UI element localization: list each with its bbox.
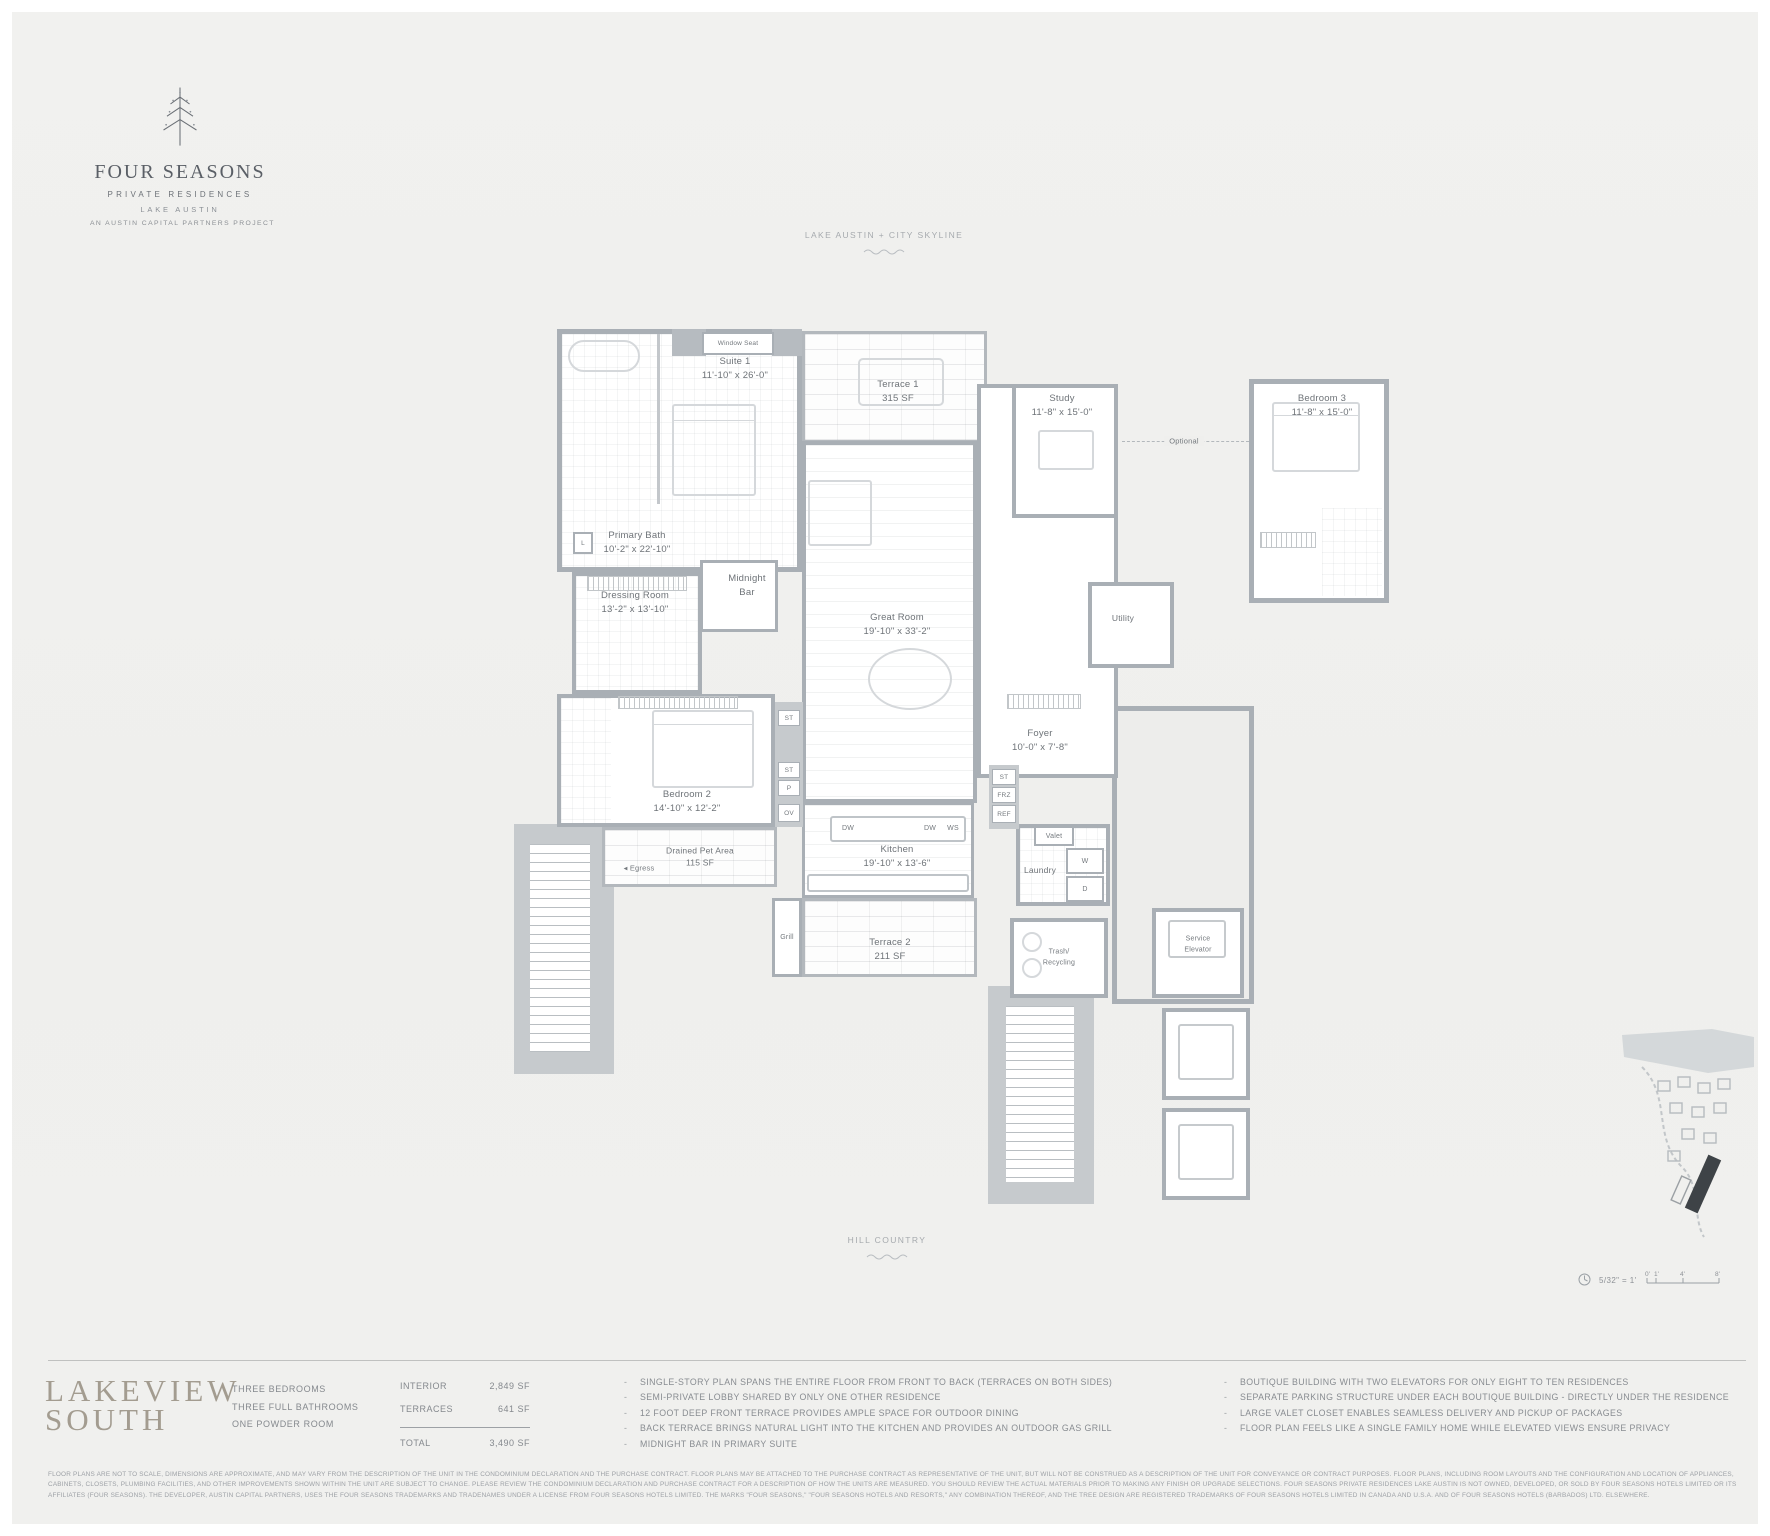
unit-specs: THREE BEDROOMS THREE FULL BATHROOMS ONE … <box>232 1381 359 1434</box>
features-right: -BOUTIQUE BUILDING WITH TWO ELEVATORS FO… <box>1224 1375 1729 1437</box>
freezer-tag: FRZ <box>992 787 1016 803</box>
bed-icon <box>672 404 756 496</box>
brand-block: Four Seasons PRIVATE RESIDENCES LAKE AUS… <box>80 84 280 214</box>
bedroom2-bath <box>561 698 611 823</box>
room-label-terrace1: Terrace 1315 SF <box>877 378 918 406</box>
svg-text:8': 8' <box>1715 1271 1720 1278</box>
closet-hatch <box>1007 694 1081 709</box>
unit-title: LAKEVIEW SOUTH <box>45 1376 241 1435</box>
fridge-tag: REF <box>992 805 1016 823</box>
brand-name: Four Seasons <box>80 161 280 184</box>
dishwasher-tag: DW <box>924 824 936 835</box>
orientation-bottom-label: HILL COUNTRY <box>848 1235 927 1245</box>
elevator-shaft-1 <box>1162 1008 1250 1100</box>
scale-ratio: 5/32" = 1' <box>1599 1276 1637 1286</box>
stairs-west <box>530 844 590 1052</box>
spec-powder: ONE POWDER ROOM <box>232 1416 359 1434</box>
bed-icon <box>652 710 754 788</box>
project-credit: AN AUSTIN CAPITAL PARTNERS PROJECT <box>90 220 275 227</box>
room-label-service-elevator: ServiceElevator <box>1184 935 1211 956</box>
bedroom3-bath <box>1322 508 1382 596</box>
room-label-great-room: Great Room19'-10" x 33'-2" <box>864 611 931 639</box>
spec-bedrooms: THREE BEDROOMS <box>232 1381 359 1399</box>
wall <box>657 334 660 504</box>
compass-icon <box>1578 1273 1591 1286</box>
room-label-primary-bath: Primary Bath10'-2" x 22'-10" <box>604 529 671 557</box>
brand-location: LAKE AUSTIN <box>80 205 280 214</box>
room-label-study: Study11'-8" x 15'-0" <box>1032 392 1093 420</box>
room-label-kitchen: Kitchen19'-10" x 13'-6" <box>864 843 931 871</box>
site-map <box>1612 1027 1760 1247</box>
divider <box>48 1360 1746 1361</box>
window-seat: Window Seat <box>702 332 774 355</box>
svg-text:4': 4' <box>1680 1271 1685 1278</box>
four-seasons-tree-icon <box>154 84 206 150</box>
orientation-top-label: LAKE AUSTIN + CITY SKYLINE <box>805 230 963 240</box>
room-label-trash: Trash/Recycling <box>1043 948 1075 969</box>
svg-text:0': 0' <box>1645 1271 1650 1278</box>
storage-tag: ST <box>778 762 800 778</box>
brand-subtitle: PRIVATE RESIDENCES <box>80 190 280 199</box>
washer-tag: W <box>1066 848 1104 874</box>
room-label-utility: Utility <box>1112 612 1134 624</box>
closet-hatch <box>618 696 738 709</box>
room-label-midnight-bar: MidnightBar <box>728 572 766 600</box>
wave-ornament <box>865 1253 909 1261</box>
floor-plan-sheet: Four Seasons PRIVATE RESIDENCES LAKE AUS… <box>0 0 1770 1536</box>
total-rule <box>400 1427 530 1428</box>
area-table: INTERIOR2,849 SF TERRACES641 SF TOTAL3,4… <box>400 1381 530 1461</box>
storage-tag: ST <box>992 769 1016 785</box>
room-label-pet-area: Drained Pet Area115 SF <box>666 845 734 870</box>
sheet-canvas: Four Seasons PRIVATE RESIDENCES LAKE AUS… <box>12 12 1758 1524</box>
room-label-laundry: Laundry <box>1024 864 1056 876</box>
wave-ornament <box>862 248 906 256</box>
room-label-suite1: Suite 111'-10" x 26'-0" <box>702 355 768 383</box>
area-row-terraces: TERRACES641 SF <box>400 1404 530 1414</box>
area-row-interior: INTERIOR2,849 SF <box>400 1381 530 1391</box>
wall <box>772 329 802 356</box>
wine-storage-tag: WS <box>947 824 959 835</box>
valet-closet: Valet <box>1034 826 1074 846</box>
stairs-south <box>1006 1006 1074 1182</box>
room-utility <box>1088 582 1174 668</box>
kitchen-counter <box>807 874 969 892</box>
elevator-shaft-2 <box>1162 1108 1250 1200</box>
closet-hatch <box>1260 532 1316 548</box>
wall <box>672 329 706 356</box>
oven-tag: OV <box>778 804 800 822</box>
desk-icon <box>1038 430 1094 470</box>
sofa-icon <box>808 480 872 546</box>
scale-ruler: 0' 1' 4' 8' <box>1645 1270 1721 1286</box>
spec-bathrooms: THREE FULL BATHROOMS <box>232 1399 359 1417</box>
optional-label: Optional <box>1164 435 1204 446</box>
room-label-foyer: Foyer10'-0" x 7'-8" <box>1012 727 1068 755</box>
area-row-total: TOTAL3,490 SF <box>400 1438 530 1448</box>
bathtub-icon <box>568 340 640 372</box>
storage-tag: ST <box>778 710 800 726</box>
pantry-tag: P <box>778 780 800 796</box>
svg-text:1': 1' <box>1654 1271 1659 1278</box>
room-label-dressing: Dressing Room13'-2" x 13'-10" <box>601 589 669 617</box>
egress-label: ◂ Egress <box>624 862 655 873</box>
features-left: -SINGLE-STORY PLAN SPANS THE ENTIRE FLOO… <box>624 1375 1112 1452</box>
dryer-tag: D <box>1066 876 1104 902</box>
dining-table-icon <box>868 648 952 710</box>
room-label-bedroom3: Bedroom 311'-8" x 15'-0" <box>1292 392 1353 420</box>
scale-bar: 5/32" = 1' 0' 1' 4' 8' <box>1578 1270 1721 1286</box>
room-label-bedroom2: Bedroom 214'-10" x 12'-2" <box>654 788 721 816</box>
room-label-terrace2: Terrace 2211 SF <box>869 936 910 964</box>
legal-disclaimer: FLOOR PLANS ARE NOT TO SCALE, DIMENSIONS… <box>48 1470 1748 1501</box>
dishwasher-tag: DW <box>842 824 854 835</box>
linen-tag: L <box>573 532 593 554</box>
grill-label: Grill <box>780 933 793 944</box>
